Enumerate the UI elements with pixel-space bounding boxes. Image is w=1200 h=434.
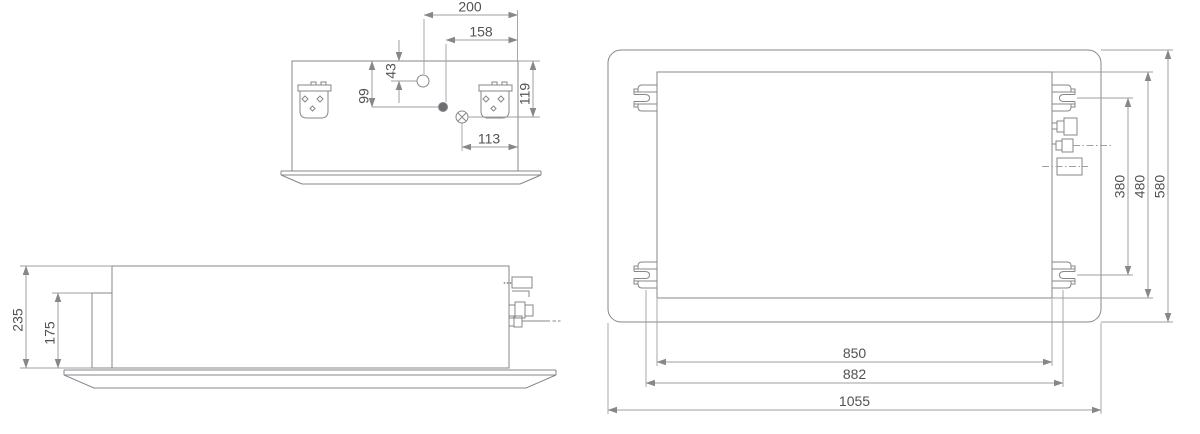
decoration-panel-outline xyxy=(64,370,556,388)
side-view: 235 175 xyxy=(10,266,561,388)
hanger-bracket-icon xyxy=(1052,262,1075,288)
decoration-panel-outline xyxy=(608,50,1101,322)
dimension-850: 850 xyxy=(657,299,1052,366)
drain-outlet-icon xyxy=(1042,158,1088,175)
unit-body-outline xyxy=(657,72,1052,298)
dim-99-label: 99 xyxy=(356,88,372,104)
dim-580-label: 580 xyxy=(1152,175,1168,199)
dimension-235: 235 xyxy=(10,266,113,368)
pipe-connections xyxy=(504,277,561,327)
dim-850-label: 850 xyxy=(843,345,867,361)
dim-113-label: 113 xyxy=(478,131,501,147)
dimension-113: 113 xyxy=(462,123,518,151)
dim-43-label: 43 xyxy=(383,63,399,79)
dimension-175: 175 xyxy=(42,293,93,368)
gas-pipe-icon xyxy=(1052,118,1077,135)
dim-1055-label: 1055 xyxy=(839,393,870,409)
dim-235-label: 235 xyxy=(10,308,26,332)
dim-175-label: 175 xyxy=(42,321,58,345)
wiring-hole-icon xyxy=(439,103,448,112)
dim-480-label: 480 xyxy=(1132,175,1148,199)
dim-200-label: 200 xyxy=(458,0,482,15)
dimensional-drawing: 200 158 43 99 119 xyxy=(0,0,1200,434)
hanger-bracket-icon xyxy=(634,85,657,111)
hanger-bracket-icon xyxy=(479,82,512,118)
plan-view: 380 480 580 850 882 1055 xyxy=(608,50,1173,414)
dimensional-drawing-page: 200 158 43 99 119 xyxy=(0,0,1200,434)
dim-119-label: 119 xyxy=(517,83,533,106)
mounting-plate-icon xyxy=(512,277,532,288)
hanger-bracket-icon xyxy=(634,262,657,288)
dimension-882: 882 xyxy=(646,290,1063,387)
hanger-bracket-icon xyxy=(1052,85,1075,111)
dimension-380: 380 xyxy=(1077,98,1133,275)
decoration-panel-outline xyxy=(281,171,541,184)
screw-hole-icon xyxy=(456,111,468,123)
dim-158-label: 158 xyxy=(469,24,493,40)
dimension-43: 43 xyxy=(383,40,418,103)
dim-380-label: 380 xyxy=(1112,175,1128,199)
dimension-158: 158 xyxy=(446,24,518,103)
end-step-outline xyxy=(92,293,112,368)
dimension-480: 480 xyxy=(1052,72,1153,298)
knockout-hole-icon xyxy=(417,75,429,87)
dim-882-label: 882 xyxy=(843,366,867,382)
unit-body-outline xyxy=(112,266,509,368)
liquid-pipe-icon xyxy=(1052,139,1112,152)
hanger-bracket-icon xyxy=(298,82,331,118)
end-view: 200 158 43 99 119 xyxy=(281,0,541,184)
